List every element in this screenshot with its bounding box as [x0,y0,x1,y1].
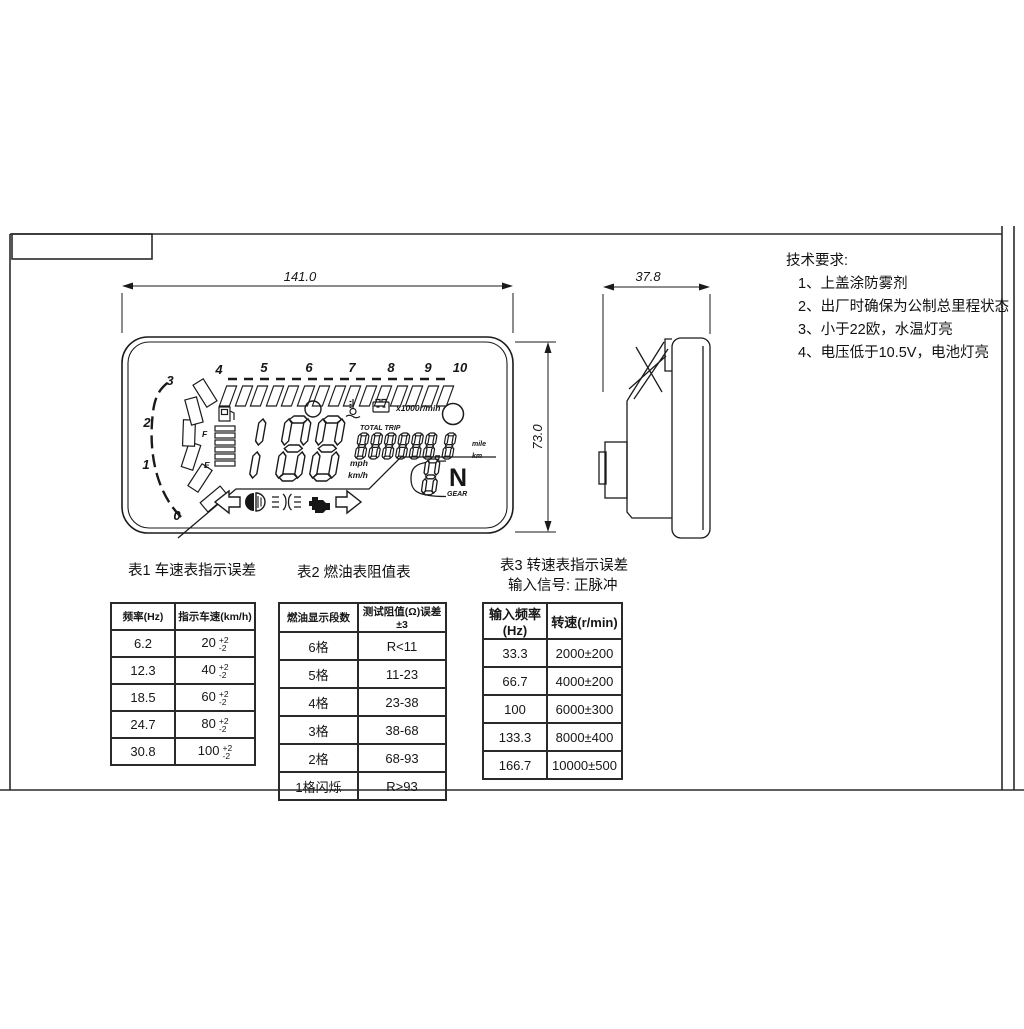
tech-requirements-title: 技术要求: [786,250,1009,273]
fuel-f-label: F [202,429,208,439]
table-row: 133.38000±400 [483,723,622,751]
fuel-pump-icon [219,407,234,421]
tach-number-0: 0 [173,508,181,523]
total-trip-label: TOTAL TRIP [360,425,401,432]
table-row: 4格23-38 [279,688,446,716]
tach-number-2: 2 [142,415,151,430]
tech-requirement-2: 2、出厂时确保为公制总里程状态 [786,296,1009,319]
odometer-digits [354,433,456,459]
front-view: 0 1 2 3 4 5 6 7 8 9 10 F E [122,337,513,538]
fuel-gauge [215,407,235,466]
tach-number-9: 9 [424,360,432,375]
table3-title: 表3 转速表指示误差 [500,554,628,575]
tach-number-8: 8 [387,360,395,375]
speed-digits [249,416,346,481]
table-row: 66.74000±200 [483,667,622,695]
dim-side-depth: 37.8 [635,269,661,284]
gear-label: GEAR [447,491,467,498]
title-block [12,234,152,259]
tech-requirements: 技术要求: 1、上盖涂防雾剂 2、出厂时确保为公制总里程状态 3、小于22欧，水… [786,250,1009,365]
t2-header-bars: 燃油显示段数 [279,603,358,632]
table-row: 1006000±300 [483,695,622,723]
table-row: 33.32000±200 [483,639,622,667]
table-row: 燃油显示段数 测试阻值(Ω)误差±3 [279,603,446,632]
neutral-indicator: N [449,464,467,492]
speedometer-error-table: 频率(Hz) 指示车速(km/h) 6.2 20+2-2 12.3 40+2-2… [110,602,256,766]
side-view [599,338,710,538]
mile-unit-label: mile [472,441,486,448]
drawing-canvas: 0 1 2 3 4 5 6 7 8 9 10 F E [0,0,1024,1024]
table-row: 12.3 40+2-2 [111,657,255,684]
table3-subtitle: 输入信号: 正脉冲 [508,574,618,595]
table-row: 5格11-23 [279,660,446,688]
table-row: 频率(Hz) 指示车速(km/h) [111,603,255,630]
table-row: 6.2 20+2-2 [111,630,255,657]
tach-number-3: 3 [166,373,174,388]
engine-warning-icon [309,497,330,513]
t3-header-hz: 输入频率(Hz) [483,603,547,639]
mph-unit-label: mph [350,458,368,468]
kmh-unit-label: km/h [348,470,368,480]
drawing-sheet: 0 1 2 3 4 5 6 7 8 9 10 F E [0,0,1024,1024]
tach-number-10: 10 [453,360,468,375]
fuel-e-label: E [204,460,210,470]
table1-title: 表1 车速表指示误差 [128,559,256,580]
tech-requirement-4: 4、电压低于10.5V，电池灯亮 [786,342,1009,365]
t2-header-resistance: 测试阻值(Ω)误差±3 [358,603,446,632]
table-row: 3格38-68 [279,716,446,744]
indicator-lamp-circle-right [443,404,464,425]
tach-number-6: 6 [305,360,313,375]
table-row: 24.7 80+2-2 [111,711,255,738]
fuel-resistance-table: 燃油显示段数 测试阻值(Ω)误差±3 6格R<11 5格11-23 4格23-3… [278,602,447,801]
tach-number-4: 4 [214,362,223,377]
high-beam-icon [272,494,301,510]
table-row: 6格R<11 [279,632,446,660]
table-row: 30.8 100+2-2 [111,738,255,765]
connector [605,442,627,498]
table-row: 166.710000±500 [483,751,622,779]
t1-header-speed: 指示车速(km/h) [175,603,255,630]
tech-requirement-3: 3、小于22欧，水温灯亮 [786,319,1009,342]
telltale-icons [215,491,361,513]
tachometer-error-table: 输入频率(Hz) 转速(r/min) 33.32000±200 66.74000… [482,602,623,780]
tach-number-7: 7 [348,360,356,375]
t3-header-rpm: 转速(r/min) [547,603,622,639]
tach-number-1: 1 [142,457,149,472]
headlight-icon [245,493,265,511]
right-turn-signal-icon [336,491,361,513]
dim-front-width: 141.0 [284,269,317,284]
table-row: 1格闪烁R>93 [279,772,446,800]
t1-header-hz: 频率(Hz) [111,603,175,630]
table-row: 输入频率(Hz) 转速(r/min) [483,603,622,639]
tach-number-5: 5 [260,360,268,375]
gear-digit [421,459,440,495]
tech-requirement-1: 1、上盖涂防雾剂 [786,273,1009,296]
x1000-label: x1000r/min [395,403,440,413]
table-row: 2格68-93 [279,744,446,772]
table2-title: 表2 燃油表阻值表 [297,561,411,582]
table-row: 18.5 60+2-2 [111,684,255,711]
dim-front-height: 73.0 [530,424,545,450]
